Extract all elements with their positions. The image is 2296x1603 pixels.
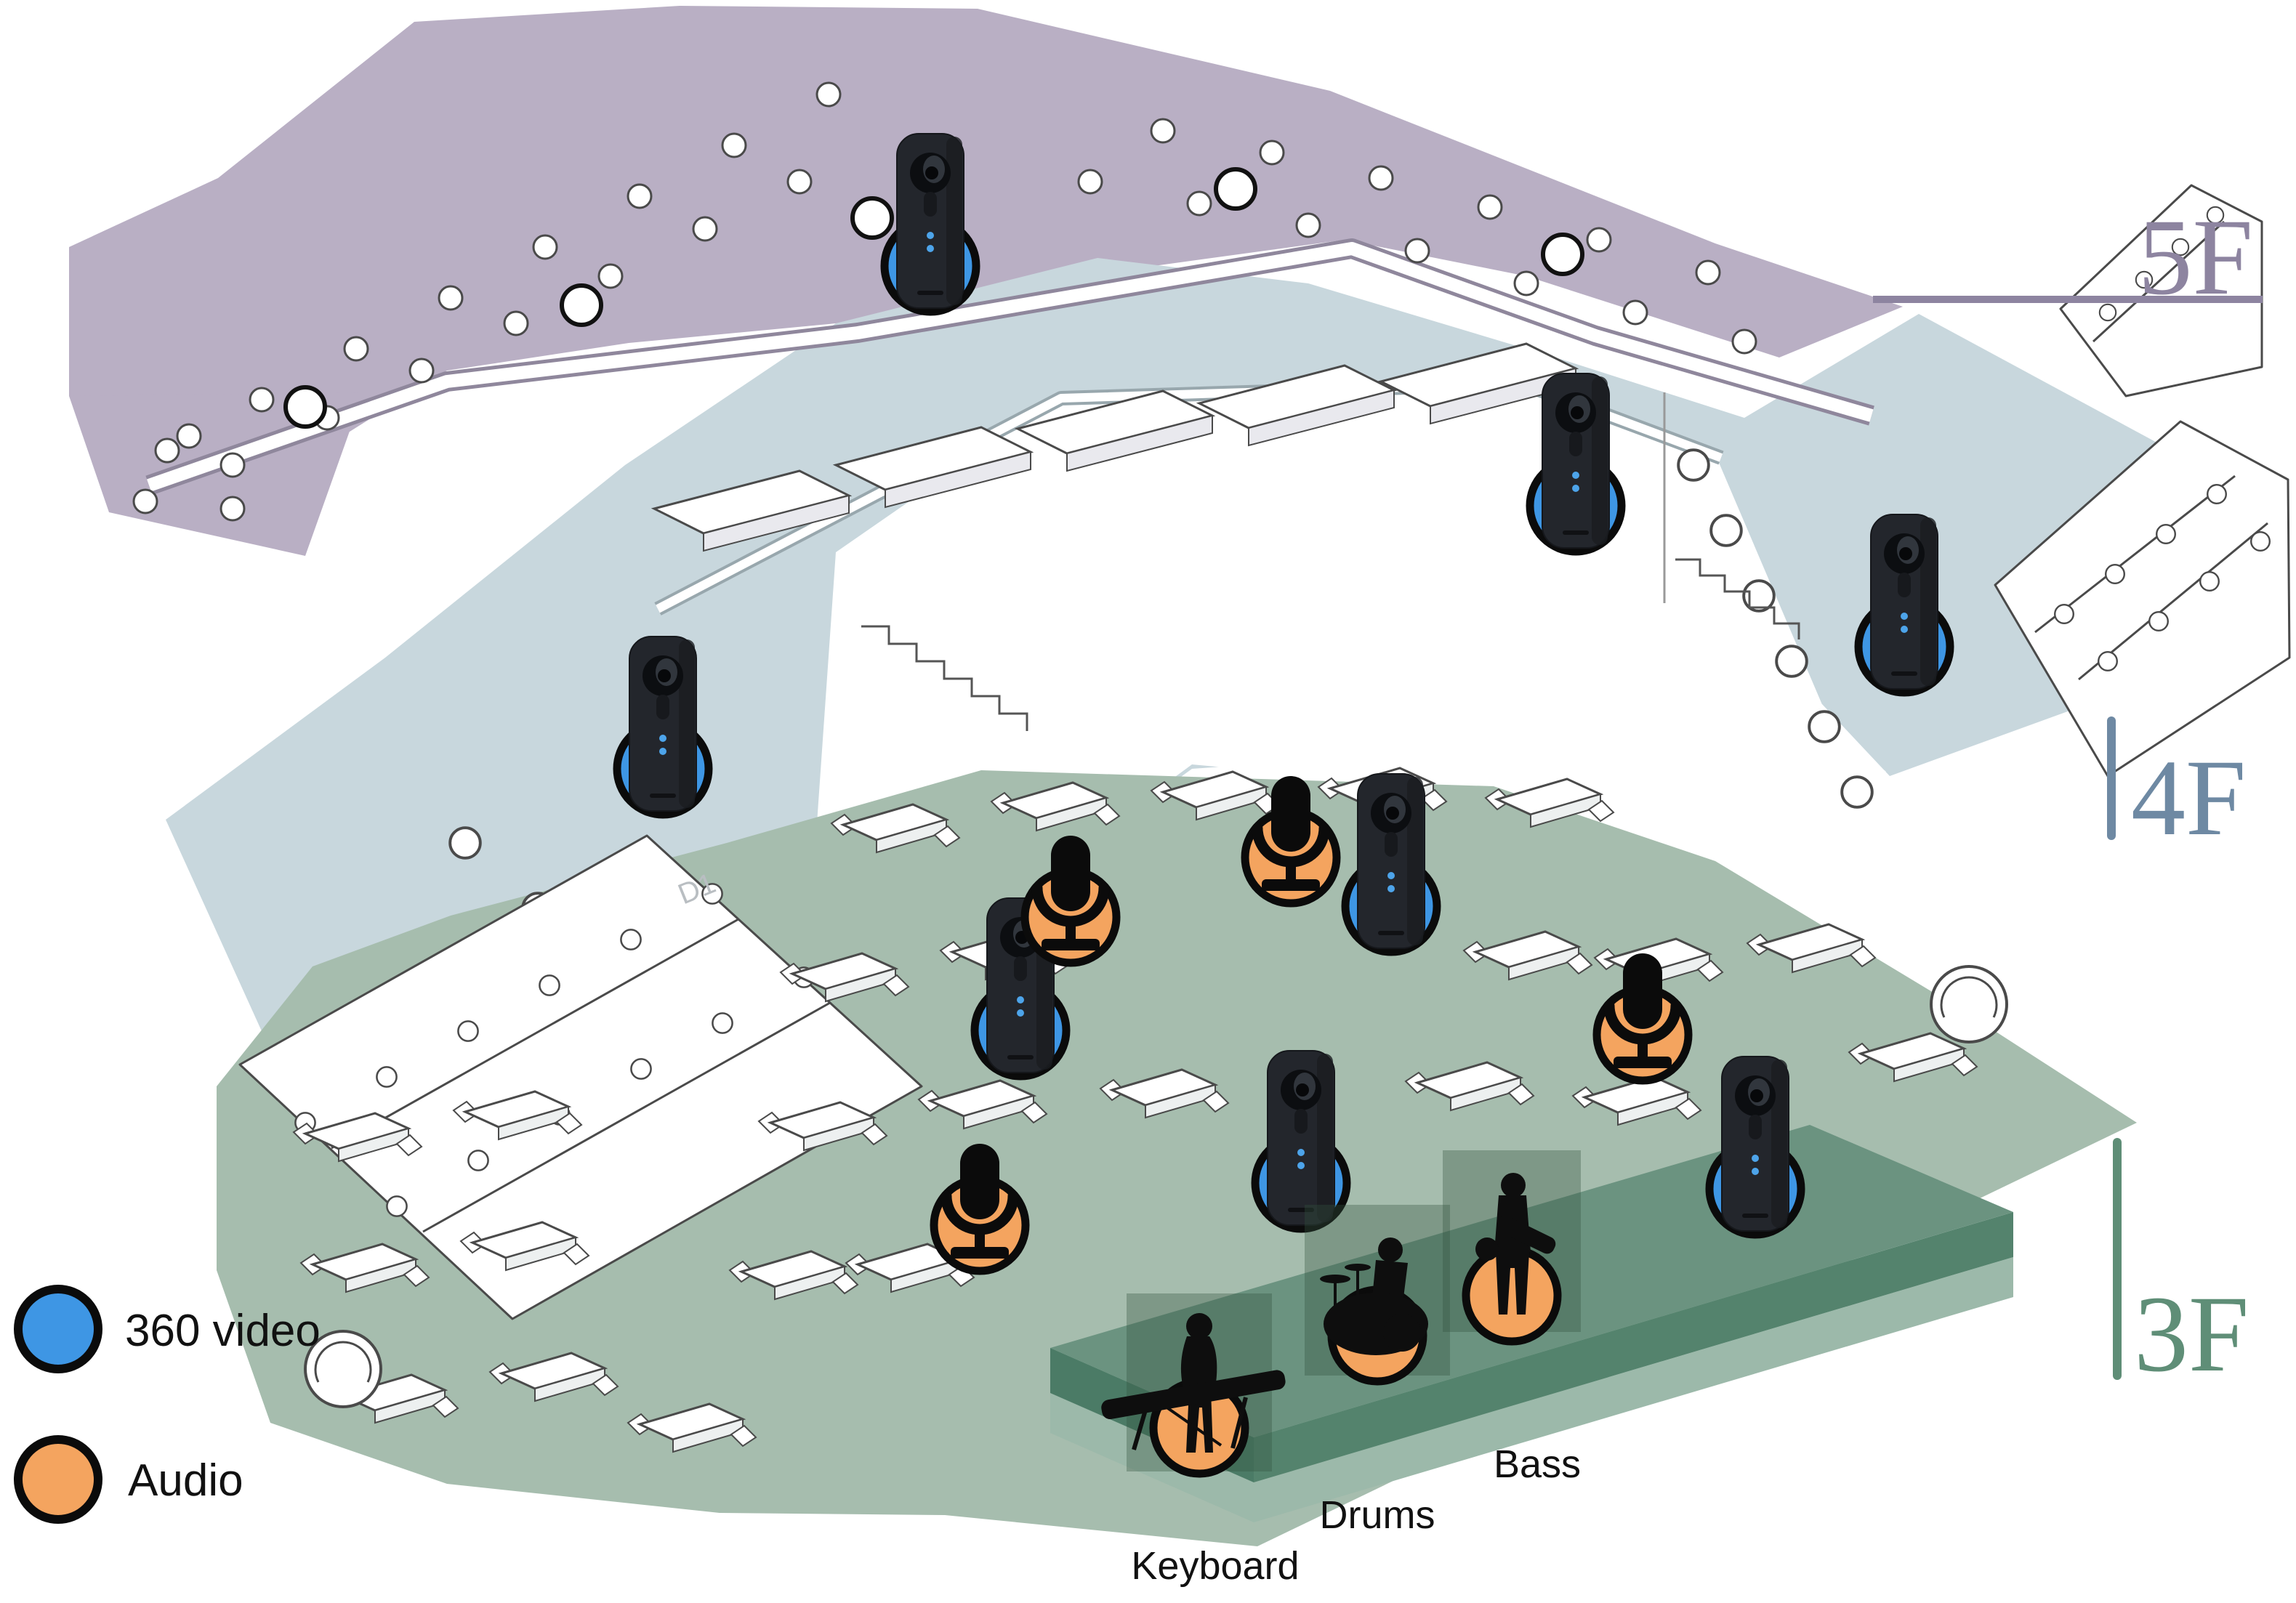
floor-label-4f: 4F <box>2131 738 2246 858</box>
stage-label-keyboard: Keyboard <box>1131 1544 1299 1588</box>
stage-label-bass: Bass <box>1494 1442 1581 1486</box>
floor-label-3f: 3F <box>2134 1274 2249 1394</box>
legend-audio-swatch <box>18 1440 98 1519</box>
floor-label-5f: 5F <box>2138 197 2253 318</box>
legend-360-video-swatch <box>18 1289 98 1369</box>
venue-floor-diagram: D1 5F 4F 3F KeyboardDrumsBass 360 video … <box>0 0 2296 1603</box>
marker-360-video <box>1255 1051 1347 1229</box>
performer-bass <box>1443 1150 1581 1341</box>
marker-360-video <box>617 637 709 815</box>
legend-audio-label: Audio <box>128 1455 243 1506</box>
performer-drums <box>1305 1205 1450 1381</box>
stage-label-drums: Drums <box>1320 1493 1435 1537</box>
round-sofa <box>1931 966 2007 1042</box>
marker-360-video <box>1709 1057 1801 1235</box>
marker-360-video <box>1858 514 1950 693</box>
legend-360-video-label: 360 video <box>125 1306 321 1356</box>
marker-360-video <box>1345 774 1437 952</box>
performer-keyboard <box>1100 1293 1287 1474</box>
marker-360-video <box>885 134 976 312</box>
marker-360-video <box>1530 374 1622 552</box>
